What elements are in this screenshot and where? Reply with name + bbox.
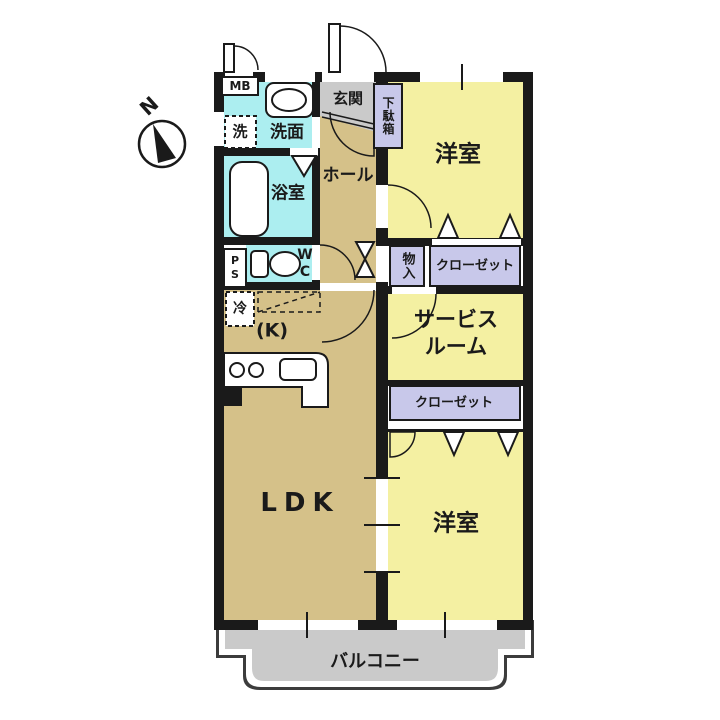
ldk-label: LDK: [260, 490, 339, 516]
opening-hall-ldk: [320, 283, 376, 291]
compass: [139, 121, 185, 167]
window-washroom: [265, 72, 315, 82]
wall-washroom-bath: [224, 148, 290, 156]
hall-label: ホール: [323, 168, 374, 185]
meter-box-label: MB: [229, 80, 250, 92]
bedroom-top-label: 洋室: [435, 144, 481, 167]
mb-door-swing: [234, 46, 258, 70]
toilet-tank: [251, 251, 268, 277]
washer-label: 洗: [232, 125, 247, 140]
mb-door-leaf: [224, 44, 234, 72]
stove-burner-right: [249, 363, 263, 377]
bath-label: 浴室: [271, 186, 305, 203]
opening-bath-door: [290, 148, 318, 156]
bedroom-bottom-label: 洋室: [433, 513, 479, 536]
opening-closet-top-doors: [432, 239, 521, 246]
opening-wc-door: [312, 245, 320, 280]
washroom-label: 洗面: [270, 125, 304, 142]
toilet-bowl: [270, 252, 300, 276]
floor-plan: N MB 洗 洗面 玄関 下駄箱 浴室 ホール 洋室 物入 クローゼット PS …: [0, 0, 720, 720]
wall-bath-wc: [224, 237, 320, 245]
storage-label: 物入: [401, 252, 414, 280]
service-room-label-line2: ルーム: [425, 337, 487, 358]
opening-washroom-door: [312, 117, 320, 148]
window-left: [214, 112, 224, 146]
refrigerator-label: 冷: [233, 302, 247, 316]
kitchen-label: (K): [256, 322, 288, 341]
entrance-label: 玄関: [333, 92, 363, 107]
stove-burner-left: [230, 363, 244, 377]
wc-label: WC: [298, 247, 312, 281]
closet-top-label: クローゼット: [436, 260, 514, 273]
opening-service-door: [392, 286, 436, 294]
sink-basin: [272, 89, 306, 111]
wall-stub-kitchen: [224, 388, 242, 406]
entrance-door-leaf: [329, 24, 340, 72]
service-room-label-line1: サービス: [414, 310, 498, 331]
bathtub: [230, 162, 268, 236]
opening-storage-door: [376, 246, 388, 282]
opening-entrance-door: [322, 72, 374, 82]
opening-bedroom-top-door: [376, 185, 388, 228]
closet-bottom-label: クローゼット: [415, 397, 493, 410]
pipe-space-label: PS: [230, 254, 241, 282]
wall-left: [214, 72, 224, 630]
balcony-label: バルコニー: [330, 653, 420, 671]
shoe-box-label: 下駄箱: [382, 97, 394, 136]
kitchen-sink: [280, 359, 316, 380]
compass-needle: [153, 124, 176, 163]
ldk-floor: [224, 290, 376, 620]
wall-right: [523, 72, 533, 630]
window-bedroom-balcony: [397, 620, 497, 630]
entrance-door-swing: [340, 26, 386, 72]
floor-plan-drawing: [0, 0, 720, 720]
